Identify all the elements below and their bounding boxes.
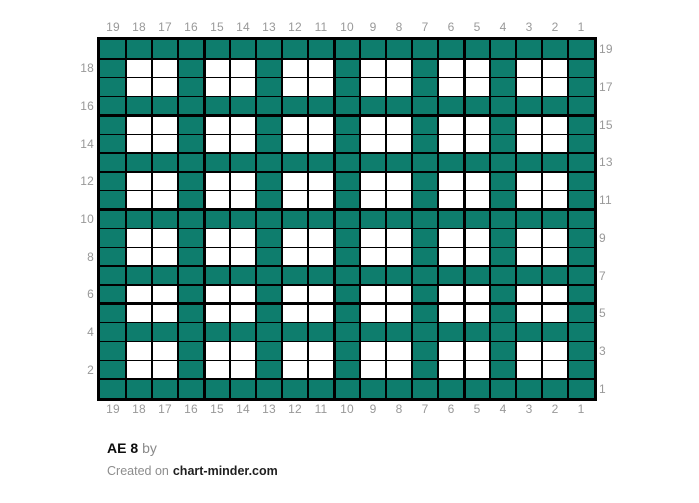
grid-cell (542, 285, 568, 304)
grid-cell (256, 266, 282, 285)
axis-label: 12 (282, 402, 308, 416)
grid-cell (178, 266, 204, 285)
grid-cell (282, 323, 308, 342)
left-row-numbers: 18161412108642 (0, 37, 94, 395)
grid-cell (308, 78, 334, 97)
grid-cell (438, 40, 464, 59)
axis-label: 4 (490, 20, 516, 34)
major-gridline (463, 40, 466, 398)
minor-gridline (541, 40, 542, 398)
grid-cell (100, 97, 126, 116)
grid-cell (490, 228, 516, 247)
minor-gridline (307, 40, 308, 398)
grid-cell (282, 360, 308, 379)
grid-cell (230, 78, 256, 97)
grid-cell (490, 191, 516, 210)
axis-label: 19 (100, 20, 126, 34)
axis-label: 2 (542, 20, 568, 34)
grid-cell (438, 304, 464, 323)
grid-cell (386, 379, 412, 398)
grid-cell (282, 266, 308, 285)
grid-cell (282, 379, 308, 398)
grid-cell (152, 172, 178, 191)
grid-cell (126, 304, 152, 323)
grid-cell (542, 153, 568, 172)
grid-cell (230, 360, 256, 379)
grid-cell (542, 134, 568, 153)
grid-cell (256, 285, 282, 304)
grid-cell (490, 59, 516, 78)
grid-cell (386, 341, 412, 360)
grid-cell (386, 304, 412, 323)
grid-cell (568, 40, 594, 59)
grid-cell (256, 247, 282, 266)
chart-byline: by (142, 440, 157, 456)
grid-cell (256, 210, 282, 229)
grid-cell (412, 341, 438, 360)
grid-cell (126, 97, 152, 116)
axis-label: 19 (599, 42, 639, 56)
grid-cell (204, 210, 230, 229)
axis-label: 11 (599, 193, 639, 207)
minor-gridline (359, 40, 360, 398)
grid-cell (542, 304, 568, 323)
grid-cell (438, 59, 464, 78)
grid-cell (516, 97, 542, 116)
grid-cell (568, 323, 594, 342)
grid-cell (412, 172, 438, 191)
grid-cell (542, 172, 568, 191)
grid-cell (100, 134, 126, 153)
grid-cell (178, 341, 204, 360)
minor-gridline (100, 96, 594, 97)
grid-cell (334, 304, 360, 323)
credit-line: Created onchart-minder.com (107, 464, 278, 479)
axis-label: 10 (0, 212, 94, 226)
grid-cell (386, 59, 412, 78)
grid-cell (152, 266, 178, 285)
grid-cell (230, 153, 256, 172)
grid-cell (464, 134, 490, 153)
grid-cell (516, 323, 542, 342)
grid-cell (438, 341, 464, 360)
grid-cell (464, 266, 490, 285)
axis-label: 5 (599, 306, 639, 320)
grid-cell (178, 172, 204, 191)
minor-gridline (385, 40, 386, 398)
grid-cell (256, 97, 282, 116)
grid-cell (542, 379, 568, 398)
grid-cell (464, 210, 490, 229)
major-gridline (333, 40, 336, 398)
major-gridline (100, 114, 594, 117)
minor-gridline (100, 322, 594, 323)
grid-cell (412, 115, 438, 134)
grid-cell (178, 304, 204, 323)
minor-gridline (100, 378, 594, 379)
grid-cell (542, 341, 568, 360)
grid-cell (464, 191, 490, 210)
axis-label: 15 (204, 402, 230, 416)
grid-cell (360, 379, 386, 398)
grid-cell (308, 341, 334, 360)
grid-cell (542, 40, 568, 59)
grid-cell (386, 172, 412, 191)
grid-cell (230, 97, 256, 116)
grid-cell (516, 59, 542, 78)
grid-cell (282, 341, 308, 360)
grid-cell (230, 304, 256, 323)
grid-cell (438, 379, 464, 398)
grid-cell (360, 59, 386, 78)
grid-cell (516, 304, 542, 323)
grid-cell (542, 191, 568, 210)
grid-cell (230, 285, 256, 304)
credit-prefix: Created on (107, 464, 169, 478)
grid-cell (438, 78, 464, 97)
axis-label: 7 (599, 269, 639, 283)
grid-cell (412, 59, 438, 78)
grid-cell (516, 285, 542, 304)
axis-label: 10 (334, 20, 360, 34)
minor-gridline (100, 265, 594, 266)
grid-cell (542, 266, 568, 285)
grid-cell (568, 172, 594, 191)
grid-cell (282, 78, 308, 97)
axis-label: 16 (178, 402, 204, 416)
major-gridline (100, 208, 594, 211)
axis-label: 17 (152, 20, 178, 34)
grid-cell (490, 360, 516, 379)
grid-cell (386, 40, 412, 59)
axis-label: 8 (386, 20, 412, 34)
grid-cell (100, 78, 126, 97)
axis-label: 15 (204, 20, 230, 34)
grid-cell (542, 97, 568, 116)
axis-label: 13 (256, 402, 282, 416)
grid-cell (230, 172, 256, 191)
grid-cell (334, 97, 360, 116)
grid-cell (256, 323, 282, 342)
grid-cell (126, 341, 152, 360)
grid-cell (204, 379, 230, 398)
grid-cell (230, 266, 256, 285)
grid-cell (360, 247, 386, 266)
grid-cell (152, 153, 178, 172)
minor-gridline (255, 40, 256, 398)
grid-cell (178, 247, 204, 266)
grid-cell (438, 210, 464, 229)
grid-cell (334, 172, 360, 191)
grid-cell (516, 228, 542, 247)
grid-cell (438, 191, 464, 210)
grid-cell (178, 360, 204, 379)
grid-cell (334, 285, 360, 304)
grid-cell (464, 360, 490, 379)
grid-cell (100, 228, 126, 247)
grid-cell (230, 341, 256, 360)
grid-cell (256, 360, 282, 379)
grid-cell (412, 285, 438, 304)
grid-cell (152, 228, 178, 247)
grid-cell (412, 134, 438, 153)
grid-cell (386, 78, 412, 97)
axis-label: 18 (126, 20, 152, 34)
grid-cell (516, 134, 542, 153)
grid-cell (100, 153, 126, 172)
grid-cell (204, 285, 230, 304)
axis-label: 10 (334, 402, 360, 416)
minor-gridline (567, 40, 568, 398)
minor-gridline (100, 228, 594, 229)
grid-cell (282, 134, 308, 153)
grid-cell (230, 115, 256, 134)
grid-cell (334, 191, 360, 210)
grid-cell (126, 153, 152, 172)
grid-cell (386, 210, 412, 229)
grid-cell (152, 210, 178, 229)
grid-cell (386, 266, 412, 285)
grid-cell (100, 304, 126, 323)
grid-cell (256, 304, 282, 323)
axis-label: 2 (0, 363, 94, 377)
grid-cell (178, 210, 204, 229)
axis-label: 14 (230, 20, 256, 34)
knitting-chart-grid (97, 37, 597, 401)
grid-cell (360, 40, 386, 59)
grid-cell (568, 153, 594, 172)
grid-cell (204, 134, 230, 153)
grid-cell (568, 97, 594, 116)
grid-cell (308, 153, 334, 172)
grid-cell (282, 115, 308, 134)
grid-cell (256, 115, 282, 134)
grid-cell (152, 40, 178, 59)
grid-cell (412, 360, 438, 379)
grid-cell (204, 40, 230, 59)
grid-cell (542, 228, 568, 247)
grid-cell (568, 191, 594, 210)
axis-label: 8 (0, 250, 94, 264)
grid-cell (152, 97, 178, 116)
grid-cell (308, 134, 334, 153)
grid-cell (282, 97, 308, 116)
minor-gridline (281, 40, 282, 398)
grid-cell (282, 172, 308, 191)
grid-cell (204, 191, 230, 210)
grid-cell (386, 134, 412, 153)
grid-cell (100, 360, 126, 379)
grid-cell (256, 228, 282, 247)
minor-gridline (229, 40, 230, 398)
grid-cell (308, 360, 334, 379)
grid-cell (100, 40, 126, 59)
grid-cell (308, 285, 334, 304)
grid-cell (308, 172, 334, 191)
grid-cell (490, 266, 516, 285)
grid-cell (568, 228, 594, 247)
grid-cell (100, 341, 126, 360)
grid-cell (464, 153, 490, 172)
grid-cell (334, 115, 360, 134)
grid-cell (490, 341, 516, 360)
grid-cell (542, 360, 568, 379)
grid-cell (126, 172, 152, 191)
grid-cell (360, 191, 386, 210)
grid-cell (152, 323, 178, 342)
top-column-numbers: 19181716151413121110987654321 (100, 20, 594, 34)
grid-cell (568, 285, 594, 304)
grid-cell (152, 115, 178, 134)
grid-cell (308, 59, 334, 78)
axis-label: 5 (464, 20, 490, 34)
grid-cell (204, 247, 230, 266)
axis-label: 9 (360, 20, 386, 34)
grid-cell (386, 97, 412, 116)
grid-cell (360, 210, 386, 229)
minor-gridline (100, 341, 594, 342)
grid-cell (438, 97, 464, 116)
chart-title-line: AE 8by (107, 440, 157, 457)
grid-cell (412, 266, 438, 285)
grid-cell (152, 304, 178, 323)
grid-cell (386, 247, 412, 266)
grid-cell (490, 134, 516, 153)
grid-cell (490, 172, 516, 191)
grid-cell (334, 323, 360, 342)
axis-label: 14 (230, 402, 256, 416)
axis-label: 8 (386, 402, 412, 416)
grid-cell (256, 172, 282, 191)
grid-cell (386, 285, 412, 304)
grid-cell (542, 210, 568, 229)
minor-gridline (489, 40, 490, 398)
grid-cell (464, 379, 490, 398)
grid-cell (490, 379, 516, 398)
axis-label: 13 (599, 155, 639, 169)
grid-cell (464, 247, 490, 266)
grid-cell (178, 153, 204, 172)
grid-cell (230, 40, 256, 59)
grid-cell (126, 59, 152, 78)
axis-label: 17 (152, 402, 178, 416)
grid-cell (438, 323, 464, 342)
grid-cell (334, 341, 360, 360)
grid-cell (178, 285, 204, 304)
axis-label: 3 (516, 20, 542, 34)
grid-cell (308, 247, 334, 266)
minor-gridline (411, 40, 412, 398)
grid-cell (204, 360, 230, 379)
grid-cell (334, 228, 360, 247)
grid-cell (568, 210, 594, 229)
grid-cell (360, 115, 386, 134)
axis-label: 16 (178, 20, 204, 34)
axis-label: 11 (308, 20, 334, 34)
grid-cell (490, 323, 516, 342)
axis-label: 7 (412, 20, 438, 34)
grid-cell (568, 341, 594, 360)
grid-cell (490, 115, 516, 134)
grid-cell (438, 228, 464, 247)
grid-cell (386, 360, 412, 379)
grid-cell (438, 360, 464, 379)
grid-cell (204, 153, 230, 172)
grid-cell (308, 97, 334, 116)
grid-cell (464, 78, 490, 97)
grid-cell (516, 172, 542, 191)
grid-cell (256, 59, 282, 78)
grid-cell (100, 172, 126, 191)
grid-cell (230, 247, 256, 266)
grid-cell (360, 360, 386, 379)
grid-cell (126, 40, 152, 59)
grid-cell (464, 97, 490, 116)
grid-cell (126, 379, 152, 398)
grid-cell (308, 115, 334, 134)
grid-cell (360, 304, 386, 323)
grid-cell (360, 341, 386, 360)
site-link[interactable]: chart-minder.com (173, 464, 278, 478)
axis-label: 1 (568, 402, 594, 416)
grid-cell (360, 153, 386, 172)
grid-cell (256, 191, 282, 210)
grid-cell (334, 78, 360, 97)
grid-cell (126, 323, 152, 342)
grid-cell (256, 134, 282, 153)
grid-cell (126, 210, 152, 229)
grid-cell (438, 285, 464, 304)
axis-label: 18 (126, 402, 152, 416)
axis-label: 3 (516, 402, 542, 416)
grid-cell (308, 379, 334, 398)
grid-cell (568, 379, 594, 398)
grid-cell (178, 228, 204, 247)
grid-cell (334, 59, 360, 78)
grid-cell (152, 285, 178, 304)
grid-cell (568, 115, 594, 134)
grid-cell (386, 323, 412, 342)
grid-cell (516, 115, 542, 134)
grid-cell (412, 228, 438, 247)
axis-label: 9 (360, 402, 386, 416)
grid-cell (282, 153, 308, 172)
grid-cell (516, 153, 542, 172)
grid-cell (282, 247, 308, 266)
grid-cell (464, 59, 490, 78)
axis-label: 2 (542, 402, 568, 416)
grid-cell (568, 304, 594, 323)
grid-cell (230, 59, 256, 78)
grid-cell (230, 134, 256, 153)
grid-cell (204, 97, 230, 116)
grid-cell (100, 285, 126, 304)
minor-gridline (125, 40, 126, 398)
right-row-numbers: 191715131197531 (599, 37, 639, 395)
grid-cell (178, 59, 204, 78)
grid-cell (334, 360, 360, 379)
minor-gridline (100, 171, 594, 172)
grid-cell (282, 210, 308, 229)
grid-cell (100, 379, 126, 398)
grid-cell (464, 304, 490, 323)
grid-cell (412, 304, 438, 323)
grid-cell (126, 360, 152, 379)
axis-label: 17 (599, 80, 639, 94)
grid-cell (230, 210, 256, 229)
grid-cell (256, 153, 282, 172)
axis-label: 16 (0, 99, 94, 113)
